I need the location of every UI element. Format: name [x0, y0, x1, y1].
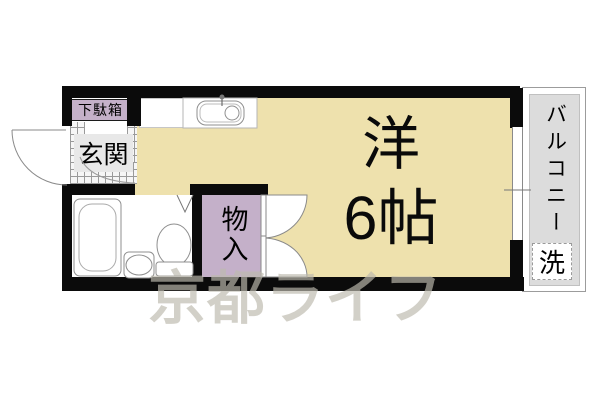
kitchen-counter-area — [139, 98, 257, 128]
wall-right-upper — [510, 88, 523, 128]
storage-closet: 物入 — [202, 193, 262, 277]
shoe-cabinet-label: 下駄箱 — [70, 99, 131, 121]
sliding-window — [512, 127, 523, 240]
floor-plan: 玄関 下駄箱 物入 バルコニー 洗 洋 6帖 — [0, 0, 600, 400]
wall-right-lower — [510, 240, 523, 280]
watermark-text: 京都ライフ — [148, 270, 443, 328]
main-room-label: 洋 6帖 — [311, 116, 471, 249]
washing-machine-space: 洗 — [532, 243, 572, 280]
wall-bathroom-top-right — [190, 184, 268, 195]
wall-left-lower — [62, 184, 72, 290]
entry-door-swing — [12, 130, 67, 185]
room-type-text: 洋 — [362, 116, 420, 174]
wall-bathroom-top-left — [62, 184, 135, 195]
bathroom-area — [72, 195, 192, 277]
room-size-text: 6帖 — [344, 188, 439, 249]
wall-stub-shoe-cabinet — [127, 86, 141, 126]
storage-label: 物入 — [219, 205, 246, 265]
wall-left-upper — [62, 86, 72, 126]
entrance-label: 玄関 — [74, 134, 133, 172]
